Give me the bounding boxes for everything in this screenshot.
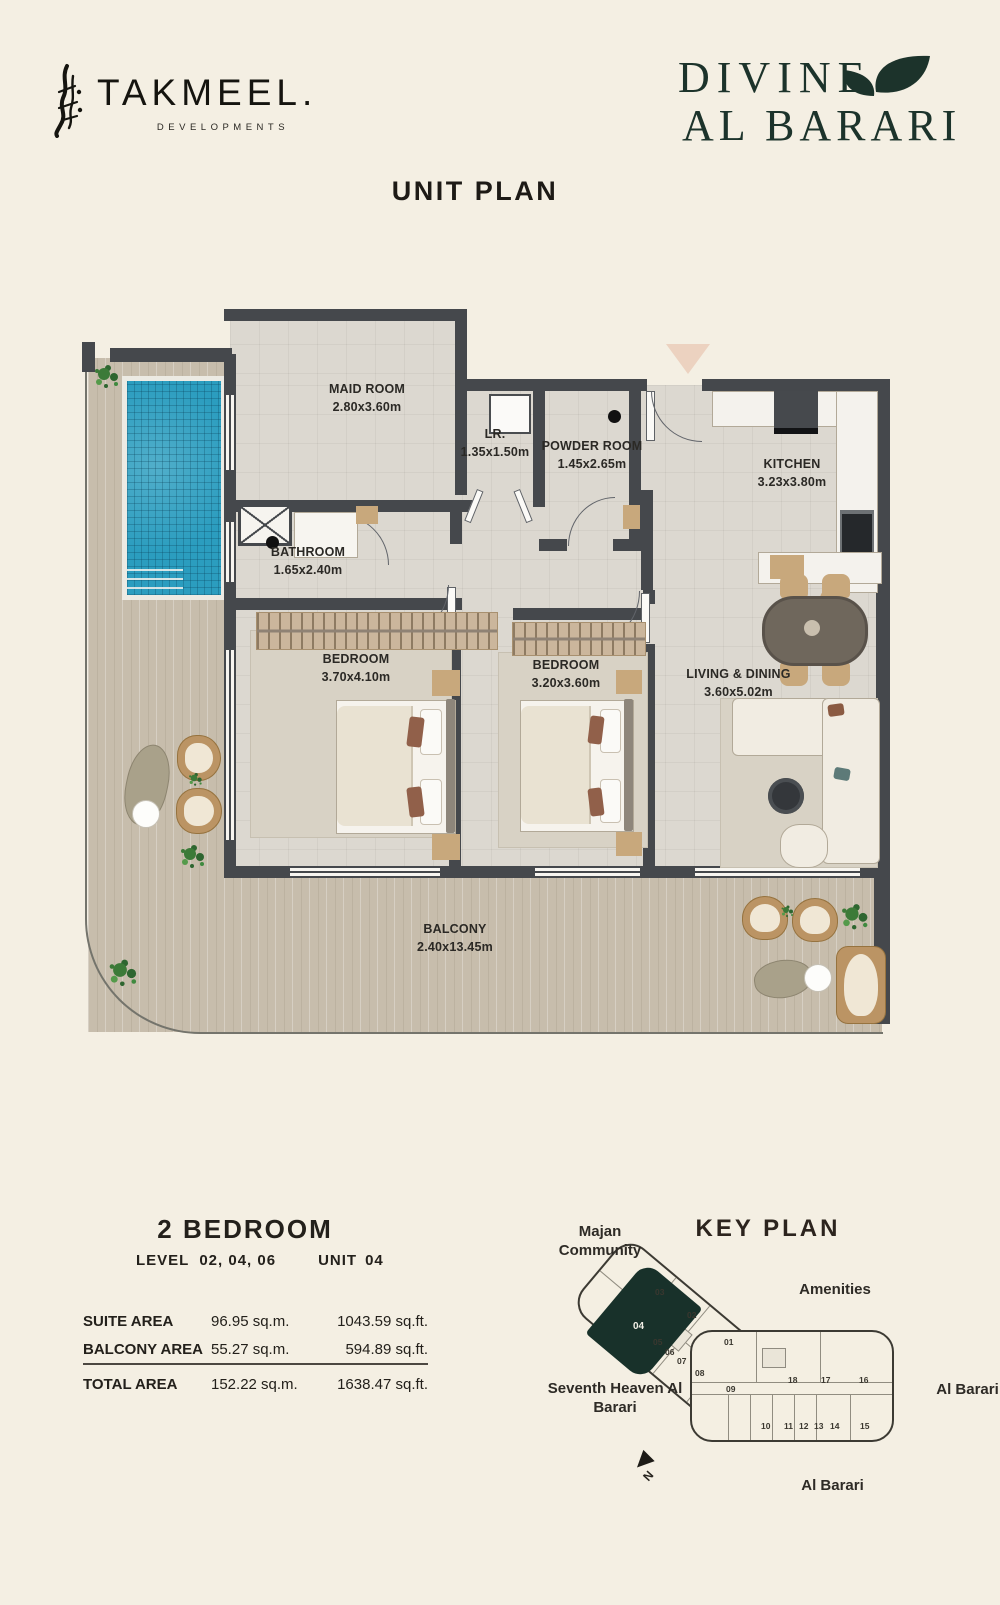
pool-steps <box>127 569 183 595</box>
key-plan: KEY PLAN 03 02 01 <box>540 1195 1000 1515</box>
closet-xbox <box>238 504 292 546</box>
unit-type-title: 2 BEDROOM <box>120 1214 370 1245</box>
window <box>224 650 236 840</box>
armchair <box>780 824 828 868</box>
room-name: POWDER ROOM <box>542 439 643 453</box>
area-row-suite: SUITE AREA 96.95 sq.m. 1043.59 sq.ft. <box>83 1313 428 1330</box>
keyplan-unit-04: 04 <box>633 1321 644 1332</box>
room-dim: 1.65x2.40m <box>274 563 343 577</box>
keyplan-unit-02: 02 <box>687 1310 696 1320</box>
accent-pillow <box>827 703 845 717</box>
table-decor <box>804 620 820 636</box>
room-dim: 3.20x3.60m <box>532 676 601 690</box>
wall <box>613 539 641 551</box>
room-name: BATHROOM <box>271 545 345 559</box>
room-label-maid: MAID ROOM 2.80x3.60m <box>287 380 447 416</box>
room-name: MAID ROOM <box>329 382 405 396</box>
keyplan-line <box>794 1394 795 1440</box>
area-sqm: 55.27 sq.m. <box>211 1341 323 1358</box>
area-label: SUITE AREA <box>83 1313 211 1330</box>
wall <box>82 342 95 372</box>
keyplan-label-amenities: Amenities <box>765 1281 905 1300</box>
area-divider <box>83 1363 428 1365</box>
keyplan-label-al-barari-bottom: Al Barari <box>790 1477 875 1496</box>
keyplan-unit-15: 15 <box>860 1421 869 1431</box>
accent-pillow <box>833 767 851 782</box>
wicker-chair <box>742 896 788 940</box>
plant <box>184 848 196 860</box>
plant <box>113 963 127 977</box>
area-sqm: 152.22 sq.m. <box>211 1376 323 1393</box>
level-label: LEVEL <box>136 1252 189 1269</box>
room-name: KITCHEN <box>764 457 821 471</box>
keyplan-label-majan: Majan Community <box>540 1223 660 1261</box>
wall <box>539 539 567 551</box>
wicker-chair <box>177 735 221 781</box>
area-row-balcony: BALCONY AREA 55.27 sq.m. 594.89 sq.ft. <box>83 1341 428 1358</box>
keyplan-unit-12: 12 <box>799 1421 808 1431</box>
keyplan-unit-18: 18 <box>788 1375 797 1385</box>
area-label: BALCONY AREA <box>83 1341 211 1358</box>
duvet <box>521 706 591 824</box>
unit-number: 04 <box>365 1252 384 1269</box>
takmeel-tagline: DEVELOPMENTS <box>99 122 347 133</box>
bed <box>520 700 634 832</box>
room-label-bathroom: BATHROOM 1.65x2.40m <box>228 543 388 579</box>
side-table <box>132 800 160 828</box>
takmeel-calligraphy-icon <box>45 62 89 138</box>
room-label-bedroom1: BEDROOM 3.70x4.10m <box>276 650 436 686</box>
room-name: LR. <box>485 427 506 441</box>
duvet <box>337 706 413 826</box>
page-title: UNIT PLAN <box>355 176 595 207</box>
plant <box>98 368 110 380</box>
headboard <box>624 699 633 831</box>
wardrobe <box>256 612 498 650</box>
plant <box>191 775 198 782</box>
window <box>224 395 236 470</box>
room-name: LIVING & DINING <box>686 667 790 681</box>
sofa-main <box>822 698 880 864</box>
sliding-window <box>535 866 640 878</box>
area-sqft: 1638.47 sq.ft. <box>323 1376 428 1393</box>
level-line: LEVEL 02, 04, 06 UNIT 04 <box>136 1252 384 1269</box>
kitchen-appliance-handle <box>774 428 818 434</box>
keyplan-unit-11: 11 <box>784 1421 793 1431</box>
unit-plan-page: TAKMEEL. DEVELOPMENTS DIVINE AL BARARI U… <box>0 0 1000 1605</box>
room-label-bedroom2: BEDROOM 3.20x3.60m <box>486 656 646 692</box>
keyplan-label-seventh-heaven: Seventh Heaven Al Barari <box>540 1380 690 1418</box>
powder-wc <box>608 410 621 423</box>
keyplan-unit-01: 01 <box>724 1337 733 1347</box>
room-name: BEDROOM <box>533 658 600 672</box>
keyplan-unit-14: 14 <box>830 1421 839 1431</box>
wicker-chair <box>792 898 838 942</box>
bath-sink <box>356 506 378 524</box>
wall <box>455 379 647 391</box>
keyplan-unit-05: 05 <box>653 1337 662 1347</box>
level-values: 02, 04, 06 <box>199 1252 276 1269</box>
north-label: N <box>640 1468 656 1484</box>
unit-label: UNIT <box>318 1252 357 1269</box>
keyplan-unit-09: 09 <box>726 1384 735 1394</box>
pillow <box>420 709 442 755</box>
keyplan-unit-06: 06 <box>665 1347 674 1357</box>
pillow <box>600 779 621 823</box>
kitchen-appliance <box>774 391 818 431</box>
pillow <box>420 779 442 825</box>
room-dim: 3.23x3.80m <box>758 475 827 489</box>
coffee-table <box>768 778 804 814</box>
nightstand <box>432 670 460 696</box>
entrance-marker-icon <box>666 344 710 374</box>
room-label-living: LIVING & DINING 3.60x5.02m <box>656 665 821 701</box>
room-dim: 2.40x13.45m <box>417 940 493 954</box>
keyplan-unit-03: 03 <box>655 1287 664 1297</box>
wall <box>110 348 232 362</box>
room-dim: 3.70x4.10m <box>322 670 391 684</box>
wicker-sofa <box>836 946 886 1024</box>
keyplan-line <box>850 1394 851 1440</box>
keyplan-unit-16: 16 <box>859 1375 868 1385</box>
wall <box>450 500 462 544</box>
keyplan-line <box>692 1394 892 1395</box>
headboard <box>446 699 455 833</box>
room-dim: 3.60x5.02m <box>704 685 773 699</box>
divine-logo-line2: AL BARARI <box>682 100 961 151</box>
wall <box>702 379 888 391</box>
keyplan-line <box>756 1332 757 1382</box>
keyplan-unit-08: 08 <box>695 1368 704 1378</box>
floor-plan: MAID ROOM 2.80x3.60m LR. 1.35x1.50m POWD… <box>80 300 920 1040</box>
leaf-icon <box>838 48 938 106</box>
nightstand <box>432 834 460 860</box>
sofa-chaise <box>732 698 830 756</box>
area-label: TOTAL AREA <box>83 1376 211 1393</box>
takmeel-logo-text: TAKMEEL. <box>97 72 317 114</box>
wall <box>641 490 653 590</box>
wardrobe <box>512 622 646 656</box>
plant <box>783 907 789 913</box>
keyplan-line <box>772 1394 773 1440</box>
side-table <box>804 964 832 992</box>
maid-room-floor <box>230 315 461 387</box>
room-label-powder: POWDER ROOM 1.45x2.65m <box>512 437 672 473</box>
wicker-chair <box>176 788 222 834</box>
area-sqm: 96.95 sq.m. <box>211 1313 323 1330</box>
keyplan-unit-10: 10 <box>761 1421 770 1431</box>
dining-chair <box>822 574 850 598</box>
room-dim: 1.45x2.65m <box>558 457 627 471</box>
powder-vanity <box>623 505 640 529</box>
room-name: BALCONY <box>423 922 486 936</box>
keyplan-core <box>762 1348 786 1368</box>
plant <box>845 907 858 920</box>
keyplan-line <box>816 1394 817 1440</box>
keyplan-line <box>750 1394 751 1440</box>
area-row-total: TOTAL AREA 152.22 sq.m. 1638.47 sq.ft. <box>83 1376 428 1393</box>
bed <box>336 700 456 834</box>
dining-chair <box>780 574 808 598</box>
room-label-kitchen: KITCHEN 3.23x3.80m <box>712 455 872 491</box>
keyplan-label-al-barari-right: Al Barari <box>925 1381 1000 1400</box>
keyplan-unit-07: 07 <box>677 1356 686 1366</box>
room-label-balcony: BALCONY 2.40x13.45m <box>375 920 535 956</box>
room-name: BEDROOM <box>323 652 390 666</box>
sliding-window <box>290 866 440 878</box>
area-sqft: 594.89 sq.ft. <box>323 1341 428 1358</box>
keyplan-unit-17: 17 <box>821 1375 830 1385</box>
keyplan-title: KEY PLAN <box>688 1215 848 1243</box>
room-dim: 2.80x3.60m <box>333 400 402 414</box>
nightstand <box>616 832 642 856</box>
swimming-pool <box>122 376 226 600</box>
keyplan-unit-13: 13 <box>814 1421 823 1431</box>
keyplan-line <box>728 1394 729 1440</box>
wall <box>224 309 467 321</box>
pillow <box>600 709 621 753</box>
area-sqft: 1043.59 sq.ft. <box>323 1313 428 1330</box>
